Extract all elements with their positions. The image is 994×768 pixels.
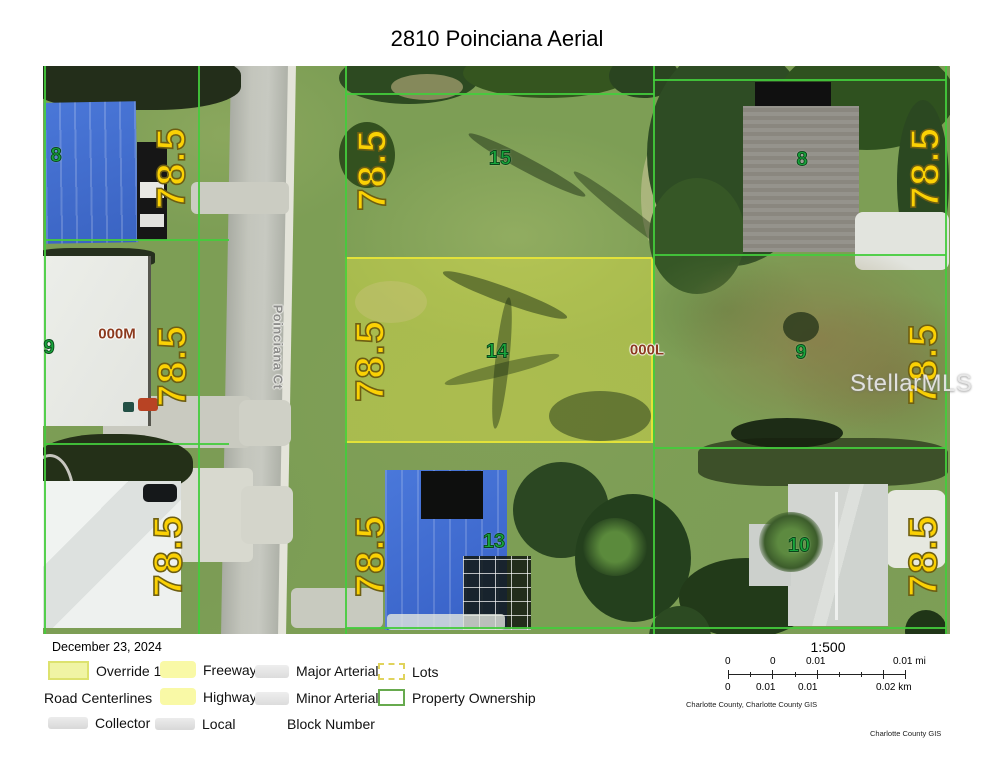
driveway-southwest-apron xyxy=(241,486,293,544)
watermark: StellarMLS xyxy=(850,370,972,398)
legend-item-property-ownership: Property Ownership xyxy=(378,689,536,706)
dimension-label: 78.5 xyxy=(904,127,949,209)
major-arterial-swatch xyxy=(255,665,289,678)
lot-number: 15 xyxy=(489,148,511,171)
legend-label: Property Ownership xyxy=(412,690,536,706)
scale-tick xyxy=(817,670,818,679)
scale-tick xyxy=(883,670,884,679)
parcel-line xyxy=(198,66,200,634)
dimension-label: 78.5 xyxy=(351,129,396,211)
shrub-cluster xyxy=(549,391,651,441)
legend-label: Road Centerlines xyxy=(44,690,152,706)
scale-mi-tick: 0 xyxy=(770,656,776,667)
house-roof-gray-northeast xyxy=(743,106,859,252)
dimension-label: 78.5 xyxy=(147,515,192,597)
teal-object xyxy=(123,402,134,412)
parcel-line xyxy=(345,627,946,629)
dimension-label: 78.5 xyxy=(151,325,196,407)
dimension-label: 78.5 xyxy=(349,320,394,402)
collector-swatch xyxy=(48,717,88,729)
dimension-label: 78.5 xyxy=(349,515,394,597)
block-label-west: 000M xyxy=(98,326,136,343)
scale-mi-tick: 0.01 mi xyxy=(893,656,926,667)
scale-tick xyxy=(750,672,751,677)
parcel-line xyxy=(345,66,347,634)
dimension-label: 78.5 xyxy=(902,515,947,597)
scale-km-tick: 0.02 km xyxy=(876,682,912,693)
parcel-line xyxy=(44,443,229,445)
scale-tick xyxy=(795,672,796,677)
sand-patch xyxy=(391,74,463,100)
sand-patch xyxy=(355,281,427,323)
dimension-label: 78.5 xyxy=(150,127,195,209)
scale-km-tick: 0.01 xyxy=(756,682,775,693)
scale-ratio: 1:500 xyxy=(793,639,863,655)
freeway-swatch xyxy=(160,661,196,678)
street-name-label: Poinciana Ct xyxy=(271,305,286,390)
legend-label: Major Arterial xyxy=(296,663,378,679)
scale-tick xyxy=(861,672,862,677)
lot-number: 9 xyxy=(795,342,806,365)
legend-label: Freeway xyxy=(203,662,257,678)
lots-swatch xyxy=(378,663,405,680)
dark-bush-lot9 xyxy=(783,312,819,342)
parcel-line xyxy=(44,239,229,241)
block-label-east: 000L xyxy=(630,342,664,359)
lot-number: 8 xyxy=(796,149,807,172)
scale-tick xyxy=(728,670,729,679)
house-roof-blue-northwest xyxy=(44,101,138,244)
tree-shadow-band-southeast xyxy=(698,438,948,486)
legend-label: Local xyxy=(202,716,235,732)
lot-number: 13 xyxy=(483,531,505,554)
legend-item-minor-arterial: Minor Arterial xyxy=(255,690,378,706)
legend-label: Minor Arterial xyxy=(296,690,378,706)
source-credit: Charlotte County, Charlotte County GIS xyxy=(686,700,817,709)
page: 2810 Poinciana Aerial xyxy=(0,0,994,768)
parcel-line xyxy=(653,447,946,449)
scale-bar xyxy=(728,670,906,679)
legend-item-freeway: Freeway xyxy=(160,661,257,678)
scale-km-tick: 0.01 xyxy=(798,682,817,693)
legend-label: Highway xyxy=(203,689,257,705)
lot-number: 8 xyxy=(50,145,61,168)
map-date: December 23, 2024 xyxy=(52,640,162,654)
scale-mi-tick: 0.01 xyxy=(806,656,825,667)
legend-item-lots: Lots xyxy=(378,663,438,680)
legend-item-major-arterial: Major Arterial xyxy=(255,663,378,679)
parcel-line xyxy=(345,93,654,95)
highway-swatch xyxy=(160,688,196,705)
tree-canopy-southeast xyxy=(905,610,947,634)
scale-km-tick: 0 xyxy=(725,682,731,693)
lot-number: 9 xyxy=(43,337,54,360)
parcel-line xyxy=(653,254,946,256)
legend-label: Collector xyxy=(95,715,150,731)
lot-number: 14 xyxy=(486,341,508,364)
legend-item-override: Override 1 xyxy=(48,661,161,680)
parcel-line xyxy=(653,79,946,81)
minor-arterial-swatch xyxy=(255,692,289,705)
legend-label: Override 1 xyxy=(96,663,161,679)
carport-white-panel xyxy=(140,214,164,227)
legend-label: Block Number xyxy=(287,716,375,732)
page-title: 2810 Poinciana Aerial xyxy=(0,26,994,52)
driveway-northwest xyxy=(191,182,289,214)
roof-ridge-line xyxy=(835,492,838,620)
lot-number: 10 xyxy=(788,535,810,558)
scale-tick xyxy=(772,670,773,679)
driveway-west-apron xyxy=(239,400,291,446)
palm-frond-light xyxy=(583,518,647,576)
local-swatch xyxy=(155,718,195,730)
property-ownership-swatch xyxy=(378,689,405,706)
scale-tick xyxy=(839,672,840,677)
palm-shadow xyxy=(465,128,588,202)
black-car xyxy=(143,484,177,502)
scale-tick xyxy=(905,670,906,679)
legend-item-block-number: Block Number xyxy=(287,716,375,732)
scale-mi-tick: 0 xyxy=(725,656,731,667)
legend-item-collector: Collector xyxy=(48,715,150,731)
legend-item-highway: Highway xyxy=(160,688,257,705)
legend-item-local: Local xyxy=(155,716,235,732)
legend-item-road-centerlines: Road Centerlines xyxy=(44,690,152,706)
aerial-map: 78.5 78.5 78.5 78.5 78.5 78.5 78.5 78.5 … xyxy=(43,66,950,634)
garage-courtyard-dark xyxy=(421,471,483,519)
bottom-right-credit: Charlotte County GIS xyxy=(870,729,941,738)
legend-label: Lots xyxy=(412,664,438,680)
override-swatch xyxy=(48,661,89,680)
